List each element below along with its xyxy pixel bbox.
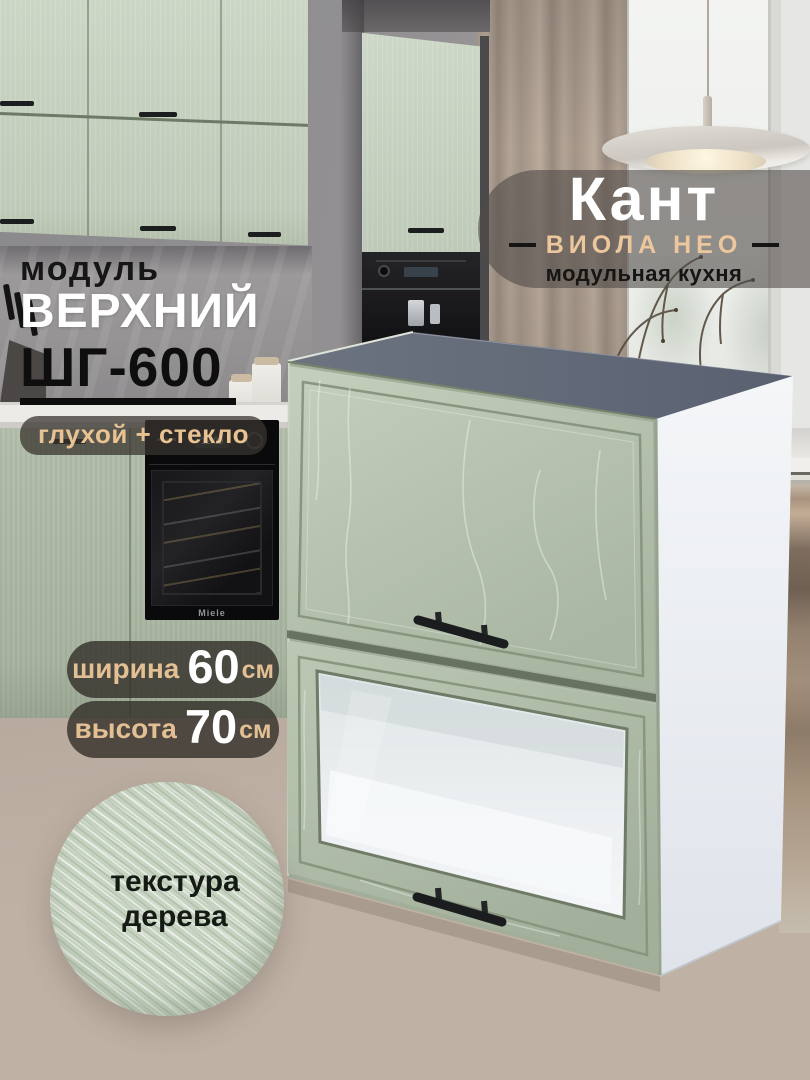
width-dimension-badge: ширина 60 см: [67, 641, 279, 698]
height-dimension-badge: высота 70 см: [67, 701, 279, 758]
decor-dash-left: [509, 243, 536, 247]
coffee-spout: [408, 300, 424, 326]
built-in-coffee-machine: [362, 252, 480, 352]
dining-area-glimpse: [779, 428, 810, 933]
brand-badge: Кант ВИОЛА НЕО модульная кухня: [478, 170, 810, 288]
coffee-spout: [430, 304, 440, 324]
trim-line: [362, 288, 480, 290]
width-unit: см: [242, 656, 274, 685]
background-wall-cabinets: [0, 0, 308, 248]
cabinet-handle: [408, 228, 444, 233]
texture-label-line1: текстура: [110, 864, 239, 899]
cabinet-door-gap: [87, 0, 89, 248]
module-name: ВЕРХНИЙ: [20, 288, 267, 336]
height-value: 70: [185, 705, 237, 750]
oven-door: [151, 470, 273, 606]
soffit-shadow: [342, 0, 490, 32]
cabinet-handle: [140, 226, 176, 231]
tall-column-cabinet: [362, 26, 480, 252]
height-unit: см: [239, 716, 271, 745]
config-badge: глухой + стекло: [20, 416, 267, 455]
brand-title: Кант: [569, 171, 720, 227]
wood-texture-swatch: текстура дерева: [50, 782, 284, 1016]
cabinet-door-gap: [220, 0, 222, 248]
oven-glass-reflection: [162, 481, 262, 595]
wood-grain-texture: [362, 26, 480, 252]
cabinet-handle: [139, 112, 177, 117]
control-row: [376, 260, 466, 262]
brand-series-text: ВИОЛА НЕО: [546, 231, 743, 260]
column-side-shadow: [480, 36, 489, 352]
brand-series: ВИОЛА НЕО: [499, 231, 790, 260]
module-kicker: модуль: [20, 252, 267, 286]
coffee-display: [404, 267, 438, 277]
cabinet-handle: [0, 101, 34, 106]
cabinet-handle: [0, 219, 34, 224]
drip-tray: [372, 343, 470, 348]
decor-dash-right: [752, 243, 779, 247]
width-value: 60: [187, 645, 239, 690]
coffee-dial: [378, 265, 390, 277]
wall-shadow: [340, 0, 364, 352]
width-label: ширина: [72, 653, 179, 685]
product-card: 12:00 Miele: [0, 0, 810, 1080]
height-label: высота: [74, 713, 176, 745]
texture-label: текстура дерева: [94, 864, 239, 935]
title-underline: [20, 398, 236, 405]
pendant-lamp-cord: [707, 0, 709, 100]
module-title-block: модуль ВЕРХНИЙ ШГ-600 глухой + стекло: [20, 252, 267, 455]
brand-tagline: модульная кухня: [546, 261, 743, 287]
cabinet-handle: [248, 232, 281, 237]
book-stack: [779, 458, 810, 484]
module-code: ШГ-600: [20, 340, 267, 395]
texture-label-line2: дерева: [110, 899, 239, 934]
oven-brand-logo: Miele: [145, 608, 279, 618]
oven-trim: [149, 464, 275, 465]
